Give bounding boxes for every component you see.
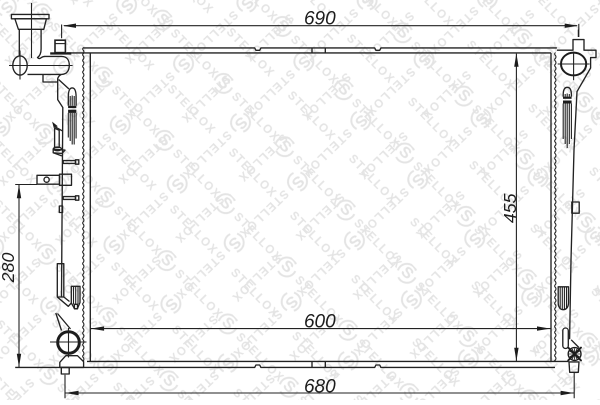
svg-text:455: 455: [500, 193, 520, 223]
svg-text:680: 680: [304, 376, 336, 397]
svg-text:280: 280: [0, 253, 18, 284]
svg-text:600: 600: [304, 311, 336, 332]
svg-text:690: 690: [304, 9, 336, 30]
